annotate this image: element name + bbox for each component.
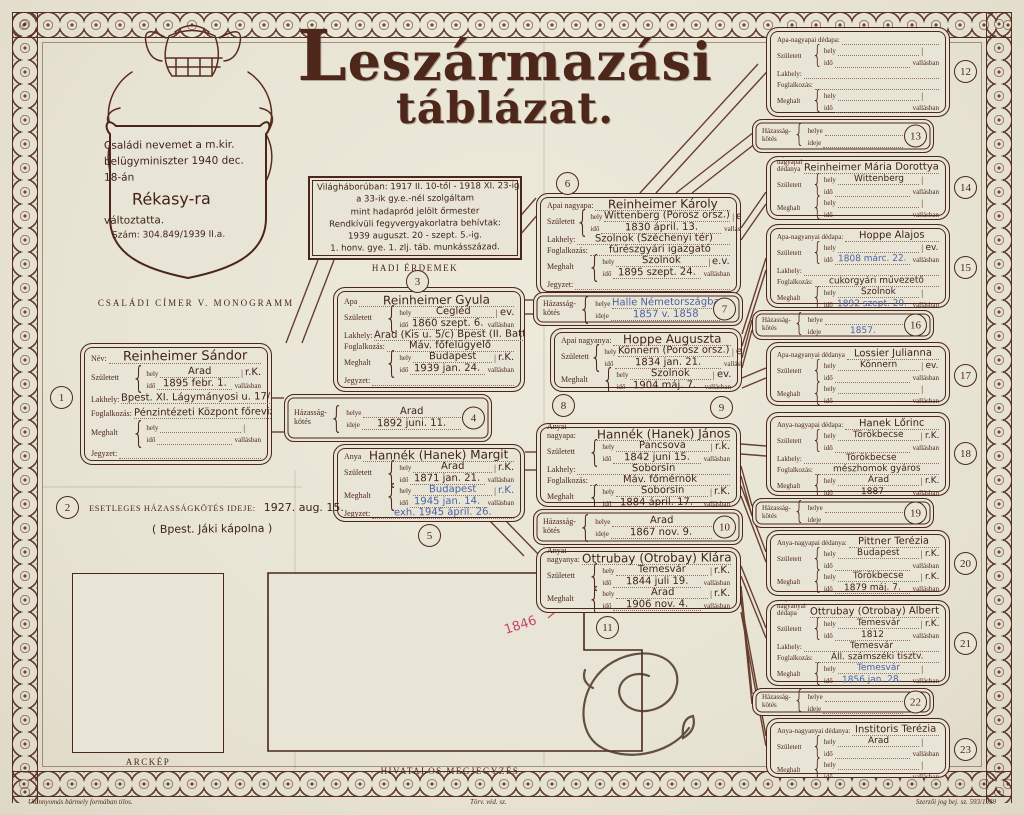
place-line: helySoborsin|r.K. [602, 486, 730, 497]
hely-label: hely [824, 363, 836, 371]
date-line: ideje [808, 514, 903, 525]
name-row: Apa-nagyanyai dédanyaLossier Julianna [777, 349, 939, 360]
dotted-line: Institoris Terézia [852, 725, 939, 736]
residence-value: Bpest. XI. Lágymányosi u. 17/b. [121, 393, 272, 404]
place-line: helySzolnok| [824, 287, 939, 298]
ido-label: idő [824, 490, 833, 496]
ido-label: idő [824, 302, 833, 308]
dotted-line [842, 35, 939, 45]
place-value: Arad [188, 367, 212, 377]
field-label: Jegyzet: [777, 116, 800, 117]
person-box-b12: Apa-nagyapai dédapa:Született{hely|időva… [766, 27, 950, 117]
szuletett-row: Született{helyCegléd|ev.idő1860 szept. 6… [344, 307, 514, 330]
place-value: Temesvár [638, 565, 686, 575]
vallasban-label: vallásban [913, 375, 939, 383]
date-value: 1808 márc. 22. [838, 255, 907, 265]
religion-value: r.K. [245, 368, 261, 378]
brace: { [132, 365, 145, 392]
dotted-line: exh. 1945 ápril. 26. [372, 508, 514, 519]
meghalt-row: Meghalt{hely|idővallásban [91, 422, 261, 445]
person-box-b8: Apai nagyanya:Hoppe AugusztaSzületett{he… [550, 328, 742, 392]
religion-value: r.K. [924, 550, 939, 559]
hely-label: hely [824, 93, 836, 101]
field-row: Foglalkozás:Áll. számszéki tisztv. [777, 652, 939, 663]
field-row: Lakhely:Bpest. XI. Lágymányosi u. 17/b. [91, 393, 261, 404]
place-value: Könnern [860, 361, 897, 370]
portrait-box [72, 573, 224, 753]
place-value: Wittenberg (Porosz orsz.) [604, 210, 730, 221]
field-label: Született [777, 368, 811, 376]
dotted-line: Temesvár [838, 619, 919, 629]
hely-label: hely [602, 568, 614, 576]
dotted-line [835, 396, 910, 406]
dotted-line: Ottrubay (Otrobay) Albert [810, 607, 939, 618]
vallasban-label: vallásban [913, 257, 939, 265]
person-name: Hoppe Auguszta [623, 333, 722, 346]
hely-label: hely [602, 259, 614, 267]
dotted-line: Szolnok [838, 288, 919, 298]
person-box-b6: Apai nagyapa:Reinheimer KárolySzületett{… [536, 193, 741, 296]
place-line: helye [808, 314, 903, 325]
date-value: 1939 jan. 24. [414, 364, 480, 375]
dotted-line: Budapest [413, 485, 492, 496]
ido-label: idő [824, 774, 833, 778]
vallasban-label: vallásban [913, 302, 939, 308]
place-line: helyTemesvár|r.K. [824, 618, 939, 629]
divider: | [494, 353, 496, 363]
marriage-date: 1857. [850, 326, 876, 335]
date-line: idő1904 máj. 7.vallásban [616, 381, 731, 392]
place-line: helyKönnern|ev. [824, 360, 939, 371]
ido-label: idő [602, 580, 611, 588]
name-label: Apai nagyanya: [561, 337, 611, 346]
place-line: helye [808, 125, 903, 136]
divider: | [921, 572, 923, 582]
brace-fields: helyBudapest|r.K.idő1939 jan. 24.vallásb… [399, 352, 514, 375]
place-line: helyBudapest|r.K. [824, 548, 939, 559]
brace-fields: hely|idővallásban [824, 45, 939, 68]
field-label: Jegyzet: [547, 281, 573, 290]
crest-caption: CSALÁDI CÍMER V. MONOGRAMM [58, 298, 334, 308]
ido-label: idő [399, 477, 408, 485]
field-label: Foglalkozás: [777, 655, 813, 663]
brace: { [812, 383, 823, 405]
person-name: Reinheimer Mária Dorottya [804, 162, 939, 173]
occupation-value: cukorgyári művezető [829, 277, 924, 287]
divider: | [710, 487, 712, 497]
name-label: Anya-nagyanyai dédapa [777, 600, 808, 618]
place-value: Törökbecse [853, 572, 904, 581]
title-line1: Leszármazási [290, 20, 720, 92]
ido-label: idő [824, 398, 833, 406]
dotted-line: Lossier Julianna [847, 349, 939, 360]
place-line: helye [808, 502, 903, 513]
dotted-line: Budapest [838, 549, 919, 559]
field-label: Foglalkozás: [777, 279, 813, 287]
vallasban-label: vallásban [704, 580, 730, 588]
date-line: ideje [808, 137, 903, 148]
religion-value: ev. [716, 370, 731, 380]
place-line: helye [808, 691, 903, 702]
field-label: Született [777, 53, 811, 61]
kotes-label: kötés [762, 702, 791, 710]
helye-label: helye [346, 410, 361, 418]
dotted-line: Bpest. XI. Lágymányosi u. 17/b. [121, 393, 272, 404]
date-line: idővallásban [824, 102, 939, 113]
place-line: hely| [824, 197, 939, 208]
field-row: Foglalkozás:mészhomok gyáros [777, 464, 939, 475]
religion-value: e.v. [712, 257, 730, 267]
szuletett-row: Született{hely|ev.idő1808 márc. 22.vallá… [777, 242, 939, 265]
meghalt-row: Meghalt{hely|idővallásban [777, 90, 939, 113]
marriage-place: Arad [400, 406, 424, 416]
field-row: Lakhely: [777, 68, 939, 79]
vallasban-label: vallásban [913, 105, 939, 113]
war-line: 1. honv. gye. 1. zlj. táb. munkásszázad. [317, 244, 513, 254]
ido-label: idő [824, 257, 833, 265]
ido-label: idő [602, 501, 611, 507]
dotted-line: 1892 juni. 11. [362, 419, 461, 430]
hely-label: hely [824, 666, 836, 674]
name-label: Anyai nagyanya: [547, 547, 580, 565]
brace: { [794, 314, 805, 336]
dotted-line [815, 80, 939, 90]
marriage-fields: helyeideje1857. [808, 314, 903, 337]
name-label: Anya [344, 453, 361, 462]
religion-value: r.K. [714, 566, 730, 576]
dotted-line: Arad [363, 407, 461, 418]
field-label: Foglalkozás: [777, 467, 813, 475]
ido-label: idő [824, 586, 833, 594]
date-value: 1892 szept. 20. [837, 300, 907, 308]
name-row: Anya-nagyanyai dédapaOttrubay (Otrobay) … [777, 607, 939, 618]
vallasban-label: vallásban [488, 477, 514, 485]
field-label: Foglalkozás: [547, 477, 588, 486]
field-row: Jegyzet: [777, 594, 939, 596]
place-line: helyWittenberg (Porosz orsz.)|ev. [590, 211, 741, 222]
ido-label: idő [146, 383, 155, 391]
dotted-line: Wittenberg (Porosz orsz.) [604, 211, 730, 222]
hely-label: hely [604, 349, 616, 357]
field-row: Foglalkozás:cukorgyári művezető [777, 276, 939, 287]
marriage-fields: helyeideje [808, 125, 903, 148]
field-label: Lakhely: [777, 456, 802, 464]
brace-fields: helyWittenberg|idővallásban [824, 174, 939, 197]
divider: | [732, 212, 734, 222]
dotted-line [804, 69, 939, 79]
field-row: Lakhely:Temesvár [777, 641, 939, 652]
dotted-line [119, 449, 261, 459]
dotted-line: Pénzintézeti Központ főrevizor [134, 408, 272, 419]
vallasban-label: vallásban [724, 361, 742, 369]
ido-label: idő [399, 367, 408, 375]
ido-label: idő [824, 563, 833, 571]
dotted-line: Arad [612, 516, 712, 527]
vallasban-label: vallásban [913, 633, 939, 641]
date-value: 1834 jan. 21. [635, 358, 701, 369]
szuletett-row: Született{helyBudapest|r.K.idővallásban [777, 548, 939, 571]
ido-label: idő [824, 105, 833, 113]
ido-label: idő [602, 271, 611, 279]
divider: | [921, 175, 923, 185]
marriage-box-m7: Házasság-kötés{helyeHalle Németországbai… [533, 292, 743, 326]
marriage-date: 1892 juni. 11. [377, 418, 446, 429]
brace-fields: helyArad|idővallásban [824, 736, 939, 759]
dotted-line [160, 423, 241, 433]
helye-label: helye [808, 505, 823, 513]
number-badge-m19: 19 [904, 502, 927, 525]
dotted-line: cukorgyári művezető [815, 277, 939, 287]
divider: | [713, 370, 715, 380]
brace: { [812, 430, 823, 452]
portrait-caption: ARCKÉP [72, 757, 224, 767]
ido-label: idő [824, 633, 833, 641]
brace: { [794, 125, 805, 147]
name-row: Apa-nagyapai dédapa: [777, 34, 939, 45]
brace: { [588, 586, 601, 613]
vallasban-label: vallásban [235, 437, 261, 445]
marriage-label: Házasság-kötés [294, 409, 327, 427]
dotted-line [835, 373, 910, 383]
brace: { [812, 242, 823, 264]
number-badge-11: 11 [596, 616, 619, 639]
place-line: hely| [824, 759, 939, 770]
vallasban-label: vallásban [913, 563, 939, 571]
place-line: helyTemesvár|r.K. [602, 565, 730, 576]
meghalt-row: Meghalt{helyArad|r.K.idő1887vallásban [777, 475, 939, 496]
vallasban-label: vallásban [488, 367, 514, 375]
marriage-fields: helyeHalle Németországbaideje1857 v. 185… [595, 298, 720, 321]
genealogy-sheet: Családi nevemet a m.kir. belügyminiszter… [0, 0, 1024, 815]
hely-label: hely [824, 48, 836, 56]
brace: { [385, 305, 398, 332]
szuletett-row: Született{helyWittenberg (Porosz orsz.)|… [547, 211, 730, 234]
brace-fields: helyBudapest|r.K.idő1945 jan. 14.vallásb… [399, 485, 514, 508]
marriage-fields: helyeideje [808, 691, 903, 714]
war-line: mint hadapród jelölt őrmester [317, 207, 513, 217]
place-line: helyTörökbecse|r.K. [824, 571, 939, 582]
person-name: Reinheimer Károly [608, 198, 718, 211]
place-line: hely| [824, 383, 939, 394]
field-row: Foglalkozás:Pénzintézeti Központ főreviz… [91, 408, 261, 419]
name-row: ApaReinheimer Gyula [344, 294, 514, 307]
brace: { [812, 571, 823, 593]
dotted-line [835, 187, 910, 197]
brace: { [132, 420, 145, 447]
number-badge-m22: 22 [904, 691, 927, 714]
field-row: Jegyzet:exh. 1945 ápril. 26. [344, 508, 514, 519]
name-label: Apa-nagyapai dédanya [777, 156, 802, 174]
religion-value: r.K. [924, 573, 939, 582]
place-value: Könnern (Porosz orsz.) [618, 346, 730, 357]
ido-label: idő [824, 375, 833, 383]
brace: { [812, 287, 823, 308]
vallasban-label: vallásban [704, 456, 730, 464]
field-label: Született [547, 572, 587, 581]
field-label: Jegyzet: [91, 450, 117, 459]
brace: { [812, 759, 823, 778]
dotted-line: 1887 [835, 488, 910, 496]
field-row: Lakhely: [777, 265, 939, 276]
brace-fields: helyPancsova|r.k.idő1842 juni 15.vallásb… [602, 441, 730, 464]
person-box-b17: Apa-nagyanyai dédanyaLossier JuliannaSzü… [766, 342, 950, 406]
brace-fields: helyTörökbecse|r.K.idővallásban [824, 430, 939, 453]
field-label: Foglalkozás: [91, 410, 132, 419]
date-value: 1812 [861, 631, 884, 640]
date-value: 1856 jan. 28. [842, 676, 902, 686]
divider: | [921, 198, 923, 208]
kotes-label: kötés [543, 309, 576, 318]
helye-label: helye [595, 519, 610, 527]
field-label: Lakhely: [777, 268, 802, 276]
name-change-note: Családi nevemet a m.kir. belügyminiszter… [104, 138, 282, 243]
dotted-line: 1895 szept. 24. [613, 268, 700, 279]
religion-value: ev. [925, 362, 939, 371]
calligraphic-flourish-icon [565, 628, 715, 768]
dotted-line [823, 704, 903, 714]
brace: { [576, 209, 589, 236]
religion-value: r.K. [498, 463, 514, 473]
hely-label: hely [399, 310, 411, 318]
szuletett-row: Született{helyTemesvár|r.K.idő1844 juli … [547, 565, 730, 588]
occupation-value: Áll. számszéki tisztv. [831, 653, 924, 663]
field-row: Foglalkozás:Máv. főmérnök [547, 475, 730, 486]
occupation-value: fűrészgyári igazgató [609, 245, 711, 256]
name-label: Anya-nagyapai dédapa: [777, 422, 843, 430]
place-value: Soborsin [641, 486, 684, 496]
number-badge-12: 12 [954, 60, 977, 83]
field-row: Jegyzet: [777, 113, 939, 117]
ideje-label: ideje [808, 329, 822, 337]
marriage-label: Házasság-kötés [762, 505, 791, 520]
date-line: idő1895 febr. 1.vallásban [146, 379, 261, 390]
hely-label: hely [590, 214, 602, 222]
place-line: helyArad| [824, 736, 939, 747]
kotes-label: kötés [543, 527, 576, 536]
vallasban-label: vallásban [913, 774, 939, 778]
residence-value: Temesvár [850, 642, 893, 651]
brace-fields: helySoborsin|r.K.idő1884 ápril. 17.vallá… [602, 486, 730, 507]
vallasban-label: vallásban [704, 271, 730, 279]
field-label: Született [777, 182, 811, 190]
dotted-line: Arad [838, 476, 919, 486]
marriage-box-m22: Házasság-kötés{helyeideje22 [752, 688, 934, 716]
field-label: Meghalt [777, 767, 811, 775]
date-line: idővallásban [146, 434, 261, 445]
vallasban-label: vallásban [724, 226, 741, 234]
title-line2: táblázat. [290, 88, 720, 131]
hely-label: hely [399, 355, 411, 363]
dotted-line [838, 198, 919, 208]
dotted-line: Pittner Terézia [849, 537, 939, 548]
decree-number: Szám: 304.849/1939 II.a. [112, 228, 282, 243]
date-value: 1879 máj. 7. [844, 584, 901, 593]
field-label: Meghalt [777, 579, 811, 587]
field-label: Született [91, 374, 131, 383]
note-value: exh. 1945 ápril. 26. [394, 508, 492, 519]
hely-label: hely [824, 177, 836, 185]
person-box-b20: Anya-nagyapai dédanya:Pittner TeréziaSzü… [766, 530, 950, 596]
vallasban-label: vallásban [235, 383, 261, 391]
dotted-line [835, 443, 910, 453]
place-line: helyTemesvár| [824, 663, 939, 674]
dotted-line [838, 91, 919, 101]
hely-label: hely [602, 489, 614, 497]
war-merits-box: Világháborúban: 1917 II. 10-től - 1918 X… [308, 176, 522, 260]
person-box-b14: Apa-nagyapai dédanyaReinheimer Mária Dor… [766, 156, 950, 220]
marriage-fields: helyeAradideje1892 juni. 11. [346, 407, 461, 430]
field-label: Született [777, 626, 811, 634]
meghalt-row: Meghalt{helyTemesvár|idő1856 jan. 28.val… [777, 663, 939, 686]
person-box-b1: Név:Reinheimer SándorSzületett{helyArad|… [80, 343, 272, 465]
helye-label: helye [808, 694, 823, 702]
meghalt-row: Meghalt{helySzolnok|idő1892 szept. 20.va… [777, 287, 939, 308]
ideje-label: ideje [595, 313, 609, 321]
szuletett-row: Született{hely|idővallásban [777, 45, 939, 68]
occupation-value: mészhomok gyáros [833, 465, 921, 475]
possible-marriage-label: ESETLEGES HÁZASSÁGKÖTÉS IDEJE: [89, 503, 256, 513]
meghalt-row: Meghalt{helyTörökbecse|r.K.idő1879 máj. … [777, 571, 939, 594]
helye-label: helye [808, 317, 823, 325]
ido-label: idő [824, 751, 833, 759]
crest-line: 18-án [104, 169, 282, 186]
divider: | [496, 308, 498, 318]
ideje-label: ideje [808, 706, 822, 714]
name-row: Név:Reinheimer Sándor [91, 350, 261, 364]
marriage-fields: helyeAradideje1867 nov. 9. [595, 516, 712, 539]
date-value: 1945 jan. 14. [414, 497, 480, 508]
hely-label: hely [824, 762, 836, 770]
dotted-line [838, 243, 919, 253]
ido-label: idő [824, 678, 833, 686]
dotted-line [838, 384, 919, 394]
ido-label: idő [824, 60, 833, 68]
field-label: Született [777, 438, 811, 446]
dotted-line [825, 503, 903, 513]
field-label: Lakhely: [777, 71, 802, 79]
field-row: Jegyzet: [91, 448, 261, 459]
hely-label: hely [824, 433, 836, 441]
dotted-line: Temesvár [804, 642, 939, 652]
date-line: idő1939 jan. 24.vallásban [399, 364, 514, 375]
place-value: Budapest [857, 549, 900, 558]
date-value: 1895 febr. 1. [163, 379, 227, 390]
dotted-line: Hanek Lőrinc [845, 419, 939, 430]
meghalt-row: Meghalt{hely|idővallásban [777, 383, 939, 406]
marriage-label: Házasság-kötés [762, 694, 791, 709]
dotted-line: Áll. számszéki tisztv. [815, 653, 939, 663]
place-line: helyTörökbecse|r.K. [824, 430, 939, 441]
dotted-line [835, 210, 910, 220]
number-badge-5: 5 [418, 524, 441, 547]
date-line: idővallásban [824, 771, 939, 778]
meghalt-row: Meghalt{hely|idővallásban [777, 759, 939, 778]
marriage-place: Arad [650, 515, 674, 525]
place-line: helyWittenberg| [824, 174, 939, 185]
brace-fields: helyKönnern|ev.idővallásban [824, 360, 939, 383]
date-line: ideje [808, 703, 903, 714]
date-line: idővallásban [824, 560, 939, 571]
hely-label: hely [824, 290, 836, 298]
religion-value: r.k. [715, 442, 730, 452]
hely-label: hely [146, 371, 158, 379]
divider: | [921, 431, 923, 441]
number-badge-6: 6 [556, 172, 579, 195]
person-name: Reinheimer Gyula [383, 294, 490, 307]
meghalt-row: Meghalt{helyBudapest|r.K.idő1939 jan. 24… [344, 352, 514, 375]
date-line: idő1856 jan. 28.vallásban [824, 675, 939, 686]
field-label: Meghalt [777, 98, 811, 106]
